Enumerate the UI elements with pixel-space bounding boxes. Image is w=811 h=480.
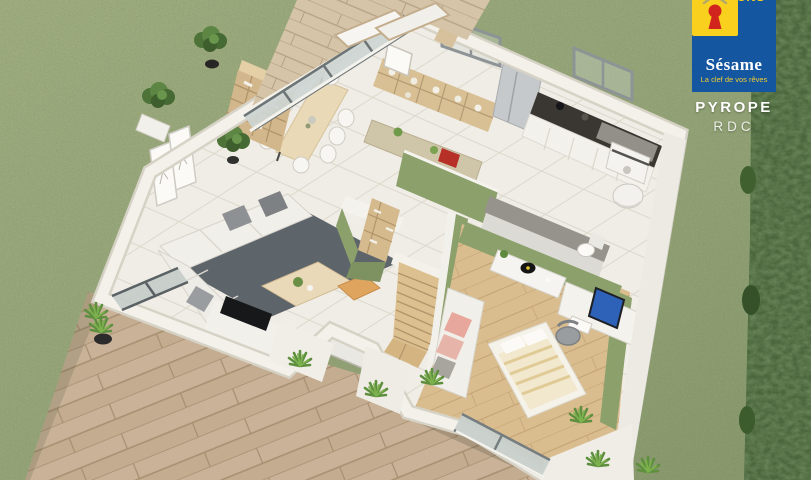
brand-logo: MAISONS Sésame La clef de vos rêves — [692, 0, 776, 92]
project-name: PYROPE — [692, 99, 776, 116]
green-decor — [394, 128, 403, 137]
floorplan-screenshot: MAISONS Sésame La clef de vos rêves PYRO… — [0, 0, 811, 480]
brand-name: Sésame — [692, 55, 776, 74]
table-plant — [293, 277, 303, 287]
black-planter-pot — [94, 334, 112, 345]
floor-label: RDC — [692, 119, 776, 134]
keyhole-icon — [711, 7, 757, 53]
toilet — [578, 244, 595, 257]
office-chair — [556, 327, 580, 345]
brand-lockup: MAISONS Sésame La clef de vos rêves PYRO… — [692, 0, 776, 134]
floorplan-render — [0, 0, 811, 480]
brand-tagline: La clef de vos rêves — [692, 75, 776, 85]
sideboard-plant — [500, 250, 508, 258]
green-decor — [430, 146, 438, 154]
